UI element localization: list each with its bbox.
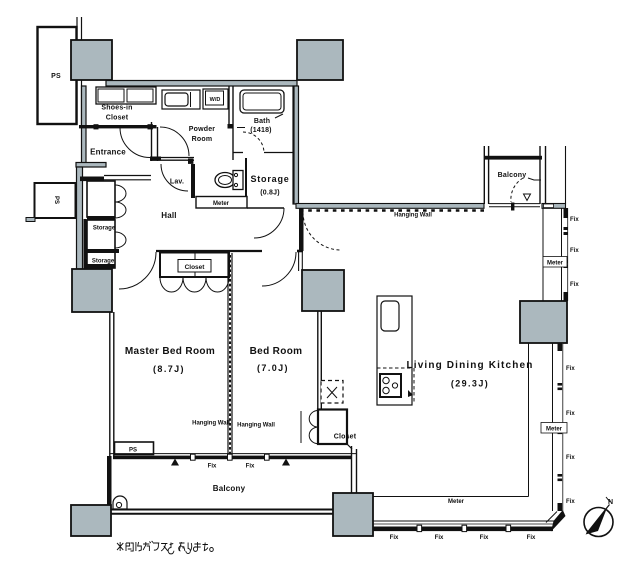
svg-text:Hanging Wall: Hanging Wall — [237, 423, 275, 429]
svg-text:Meter: Meter — [448, 499, 465, 505]
svg-text:Room: Room — [192, 136, 213, 143]
svg-text:W/D: W/D — [210, 97, 221, 103]
svg-text:Fix: Fix — [435, 535, 444, 541]
svg-text:(0.8J): (0.8J) — [260, 190, 280, 197]
svg-text:Fix: Fix — [390, 535, 399, 541]
svg-text:Fix: Fix — [246, 464, 255, 470]
svg-text:Fix: Fix — [570, 217, 579, 223]
svg-text:Powder: Powder — [189, 126, 216, 133]
svg-text:PS: PS — [51, 73, 61, 80]
svg-text:Fix: Fix — [527, 535, 536, 541]
svg-text:Storage: Storage — [92, 259, 115, 265]
svg-text:Living Dining Kitchen: Living Dining Kitchen — [407, 360, 534, 371]
svg-text:Lav.: Lav. — [170, 179, 184, 186]
svg-text:Shoes-in: Shoes-in — [101, 105, 132, 112]
svg-text:Meter: Meter — [547, 261, 564, 267]
svg-text:Meter: Meter — [213, 201, 230, 207]
svg-text:Master Bed Room: Master Bed Room — [125, 346, 215, 357]
svg-text:Fix: Fix — [570, 248, 579, 254]
svg-text:Balcony: Balcony — [498, 172, 527, 179]
svg-text:Closet: Closet — [185, 264, 206, 271]
svg-text:PS: PS — [129, 448, 137, 454]
svg-text:Hanging Wall: Hanging Wall — [192, 421, 230, 427]
svg-text:Hall: Hall — [161, 211, 176, 220]
svg-text:Meter: Meter — [546, 427, 563, 433]
svg-text:(29.3J): (29.3J) — [451, 379, 489, 389]
svg-text:Fix: Fix — [566, 411, 575, 417]
svg-text:Fix: Fix — [566, 499, 575, 505]
svg-text:Closet: Closet — [106, 115, 129, 122]
svg-text:Bath: Bath — [254, 118, 270, 125]
svg-text:Closet: Closet — [334, 434, 357, 441]
svg-text:(7.0J): (7.0J) — [257, 363, 289, 373]
svg-text:Fix: Fix — [566, 455, 575, 461]
svg-text:Hanging Wall: Hanging Wall — [394, 213, 432, 219]
svg-text:Storage: Storage — [93, 226, 116, 232]
svg-text:Bed Room: Bed Room — [250, 346, 303, 357]
svg-text:Fix: Fix — [570, 282, 579, 288]
svg-text:Storage: Storage — [250, 174, 289, 184]
svg-text:Fix: Fix — [480, 535, 489, 541]
svg-text:Fix: Fix — [208, 464, 217, 470]
svg-text:(8.7J): (8.7J) — [153, 364, 185, 374]
svg-text:Entrance: Entrance — [90, 148, 126, 157]
svg-text:(1418): (1418) — [250, 127, 271, 134]
svg-text:Balcony: Balcony — [213, 484, 246, 493]
svg-text:PS: PS — [53, 196, 59, 204]
svg-text:Fix: Fix — [566, 366, 575, 372]
